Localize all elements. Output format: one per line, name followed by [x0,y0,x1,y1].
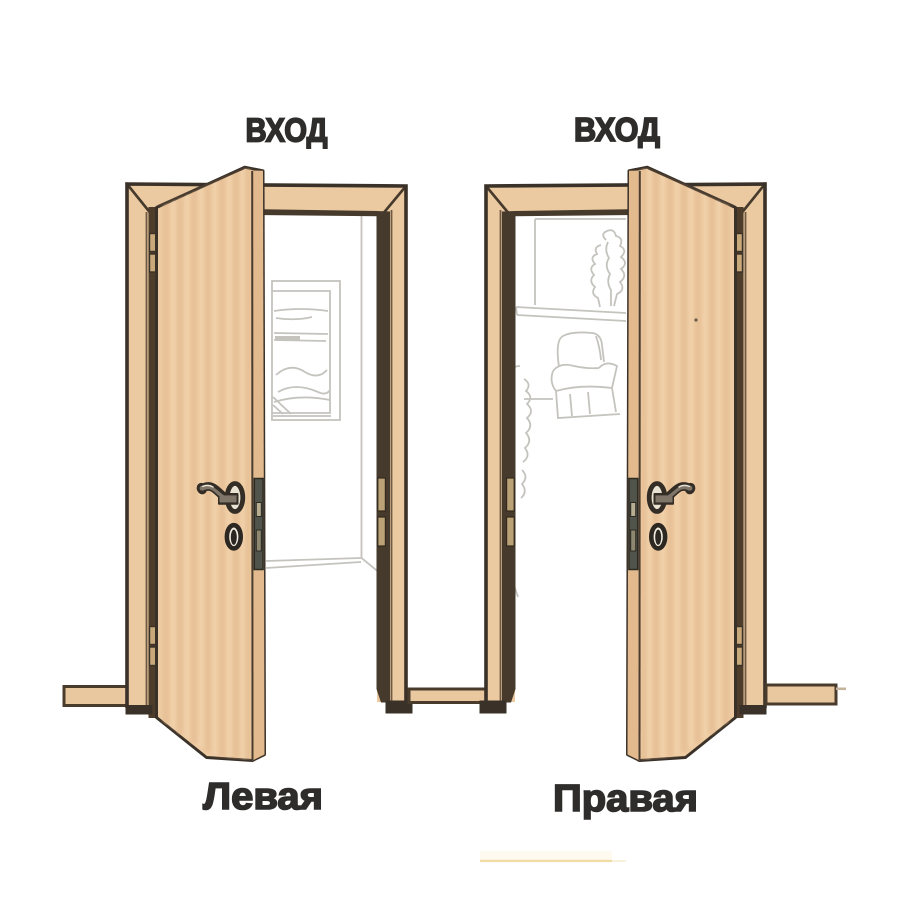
svg-text:Правая: Правая [553,778,698,820]
svg-text:ВХОД: ВХОД [246,113,328,150]
svg-text:ВХОД: ВХОД [574,112,660,149]
svg-text:Левая: Левая [203,776,323,818]
